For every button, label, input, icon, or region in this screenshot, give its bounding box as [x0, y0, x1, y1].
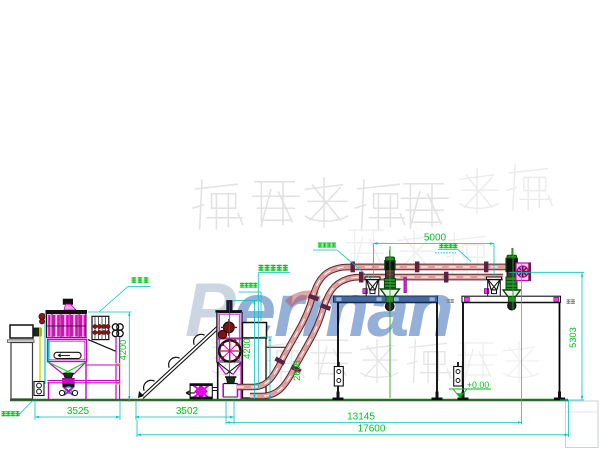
svg-text:3502: 3502 [176, 406, 199, 417]
svg-text:2605: 2605 [292, 360, 302, 381]
svg-text:17600: 17600 [358, 424, 386, 435]
svg-text:13145: 13145 [347, 412, 375, 423]
svg-text:4200: 4200 [118, 340, 128, 361]
svg-text:5000: 5000 [424, 233, 447, 244]
svg-text:+0.00: +0.00 [467, 380, 489, 390]
svg-text:3525: 3525 [67, 406, 90, 417]
svg-text:4200: 4200 [242, 338, 252, 359]
svg-text:5303: 5303 [568, 327, 578, 348]
